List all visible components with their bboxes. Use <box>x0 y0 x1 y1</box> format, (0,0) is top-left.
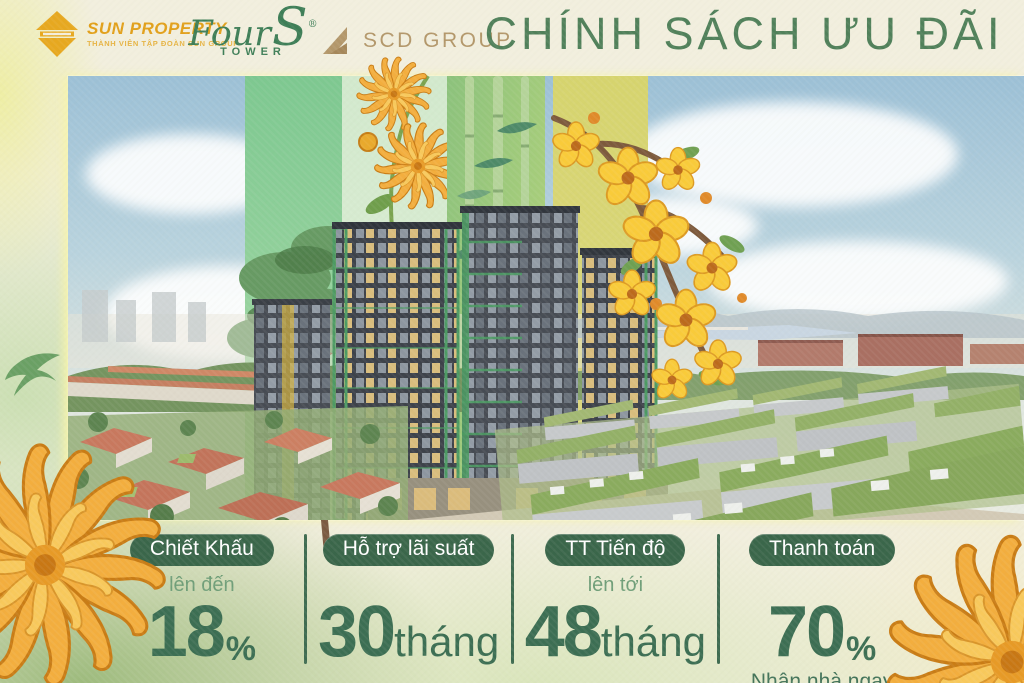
scd-triangle-icon <box>320 24 354 58</box>
stat-interest-unit: tháng <box>394 618 499 666</box>
chrysanthemum-corner-right <box>872 522 1024 683</box>
stats-row: Chiết Khấu lên đến 18% Hỗ trợ lãi suất 3… <box>100 528 924 676</box>
four-s-tower-logo: FourS® TOWER <box>188 2 318 58</box>
sun-property-diamond-icon <box>34 10 80 58</box>
stat-interest-pill: Hỗ trợ lãi suất <box>323 534 495 566</box>
swallow-icon <box>4 350 62 398</box>
stat-payment-value: 70 <box>768 596 844 668</box>
promo-poster: SUN PROPERTY THÀNH VIÊN TẬP ĐOÀN SUN GRO… <box>0 0 1024 683</box>
four-s-registered-mark: ® <box>308 19 318 30</box>
page-title: CHÍNH SÁCH ƯU ĐÃI <box>468 8 1020 60</box>
stat-schedule-value: 48 <box>525 596 601 668</box>
stat-payment-schedule: TT Tiến độ lên tới 48tháng <box>514 528 718 676</box>
stat-schedule-pill: TT Tiến độ <box>545 534 685 566</box>
stat-interest-value: 30 <box>318 596 394 668</box>
hero-render <box>68 76 1024 520</box>
header: SUN PROPERTY THÀNH VIÊN TẬP ĐOÀN SUN GRO… <box>0 0 1024 76</box>
stat-interest-support: Hỗ trợ lãi suất 30tháng <box>307 528 511 676</box>
apricot-blossom-illustration <box>536 58 786 418</box>
stat-schedule-unit: tháng <box>601 618 706 666</box>
stat-discount-unit: % <box>226 630 256 669</box>
chrysanthemum-corner-left <box>0 432 178 683</box>
